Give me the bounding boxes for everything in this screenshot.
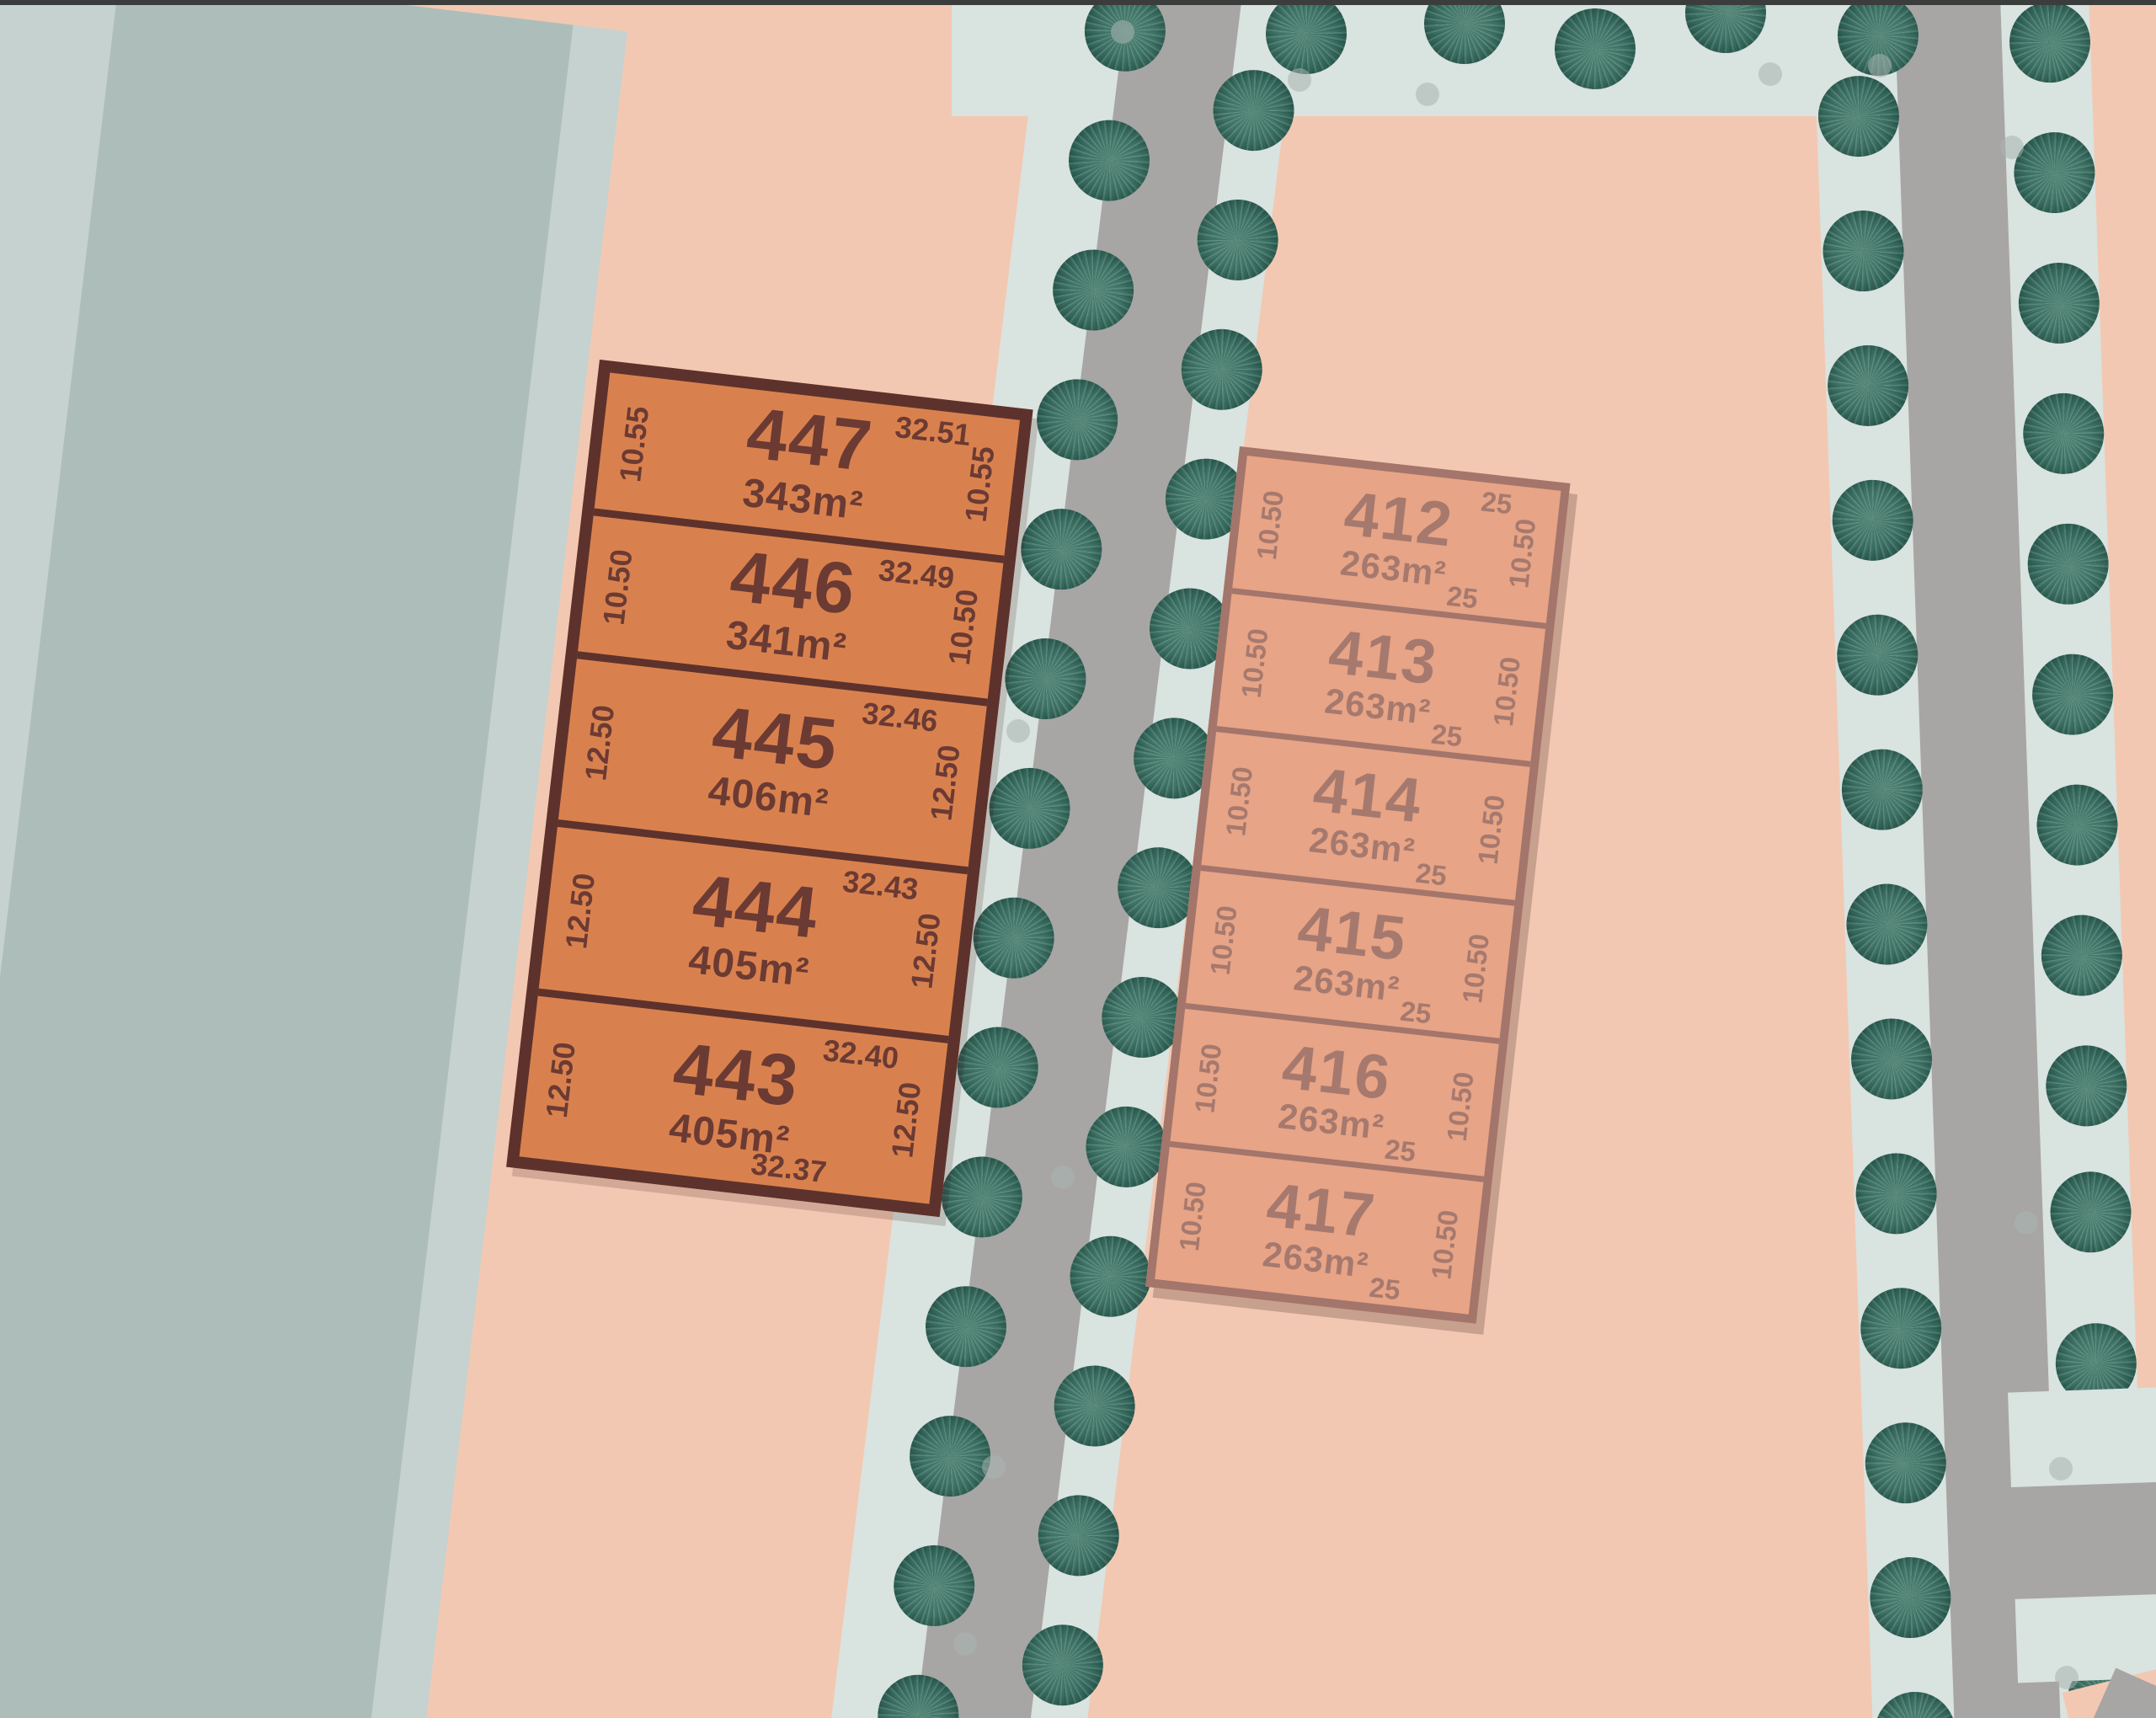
lot-number: 447 — [744, 399, 877, 482]
ground-dot — [953, 1632, 977, 1656]
dimension-bottom-417: 25 — [1368, 1272, 1402, 1307]
greenbelt — [0, 0, 627, 1718]
lot-block-lots-443-447[interactable]: 447 343m² 32.5110.5510.55 446 341m² 32.4… — [506, 360, 1033, 1217]
ground-dot — [1288, 68, 1311, 92]
ground-dot — [982, 1455, 1006, 1479]
ground-dot — [2000, 136, 2024, 159]
dimension-bottom-413: 25 — [1429, 718, 1464, 754]
lot-number: 443 — [670, 1034, 803, 1117]
ground-dot — [1758, 62, 1782, 86]
dimension-bottom-416: 25 — [1383, 1133, 1417, 1168]
ground-dot — [2055, 1666, 2079, 1689]
ground-dot — [2049, 1457, 2073, 1481]
lot-number: 446 — [727, 542, 860, 625]
dimension-top-412: 25 — [1480, 485, 1514, 520]
lot-number: 444 — [690, 866, 823, 948]
subdivision-map: 447 343m² 32.5110.5510.55 446 341m² 32.4… — [0, 0, 2156, 1718]
ground-dot — [1051, 1166, 1075, 1189]
dimension-bottom-412: 25 — [1445, 580, 1480, 616]
lot-number: 445 — [709, 697, 842, 780]
dimension-bottom-414: 25 — [1414, 856, 1449, 892]
dimension-bottom-415: 25 — [1399, 995, 1433, 1030]
branch-road-carriageway — [1990, 1481, 2156, 1600]
ground-dot — [1006, 719, 1030, 743]
ground-dot — [1868, 54, 1892, 77]
ground-dot — [1111, 20, 1134, 44]
ground-dot — [1416, 83, 1439, 106]
window-top-edge — [0, 0, 2156, 5]
ground-dot — [2015, 1211, 2038, 1235]
